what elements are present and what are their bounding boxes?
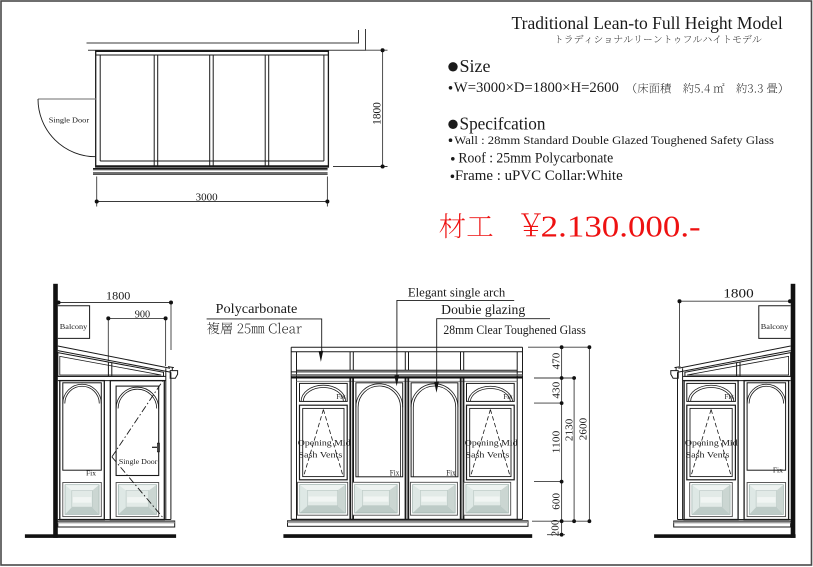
svg-text:1800: 1800 <box>372 102 384 125</box>
svg-text:Fix: Fix <box>724 392 734 401</box>
svg-text:Sash Vents: Sash Vents <box>465 450 510 460</box>
svg-text:Wall : 28mm Standard Double: Wall : 28mm Standard Double Glazed Tough… <box>454 133 774 147</box>
svg-text:2.130.000.-: 2.130.000.- <box>541 208 701 243</box>
svg-text:Opening Mid: Opening Mid <box>465 438 518 448</box>
svg-text:28mm Clear Toughened Glass: 28mm Clear Toughened Glass <box>443 322 585 337</box>
svg-text:Fix: Fix <box>86 469 96 478</box>
svg-text:1800: 1800 <box>723 286 753 301</box>
svg-text:3000: 3000 <box>196 193 218 204</box>
svg-text:430: 430 <box>550 381 562 398</box>
svg-text:Fix: Fix <box>336 392 346 401</box>
svg-text:900: 900 <box>135 310 150 321</box>
svg-text:1800: 1800 <box>106 291 131 303</box>
svg-text:Opening Mid: Opening Mid <box>298 438 351 448</box>
svg-text:Polycarbonate: Polycarbonate <box>216 301 298 316</box>
svg-text:2600: 2600 <box>578 417 590 440</box>
svg-text:600: 600 <box>550 493 562 510</box>
svg-text:Fix: Fix <box>773 466 783 475</box>
svg-text:Balcony: Balcony <box>761 322 789 331</box>
svg-text:Sash Vents: Sash Vents <box>686 450 731 460</box>
svg-text:2130: 2130 <box>563 418 575 441</box>
svg-text:Roof : 25mm Polycarbonate: Roof : 25mm Polycarbonate <box>458 151 613 167</box>
svg-text:Fix: Fix <box>503 392 513 401</box>
svg-text:Doubie glazing: Doubie glazing <box>441 302 525 317</box>
svg-text:Fix: Fix <box>446 469 456 478</box>
svg-text:Size: Size <box>460 56 491 76</box>
svg-text:Single Door: Single Door <box>119 459 158 466</box>
svg-text:200: 200 <box>549 519 561 536</box>
svg-text:Frame : uPVC Collar:White: Frame : uPVC Collar:White <box>455 168 623 184</box>
svg-text:Sash Vents: Sash Vents <box>298 450 343 460</box>
svg-text:Elegant single arch: Elegant single arch <box>408 285 506 300</box>
svg-text:W=3000×D=1800×H=2600: W=3000×D=1800×H=2600 <box>454 80 619 96</box>
svg-text:Opening Mid: Opening Mid <box>685 438 738 448</box>
svg-text:Traditional Lean-to Full Heigh: Traditional Lean-to Full Height Model <box>512 13 783 33</box>
svg-text:Specifcation: Specifcation <box>460 114 546 134</box>
svg-text:Single Door: Single Door <box>49 118 90 125</box>
svg-text:Balcony: Balcony <box>60 322 88 331</box>
svg-text:470: 470 <box>550 352 562 369</box>
svg-text:1100: 1100 <box>550 430 562 453</box>
svg-text:Fix: Fix <box>390 469 400 478</box>
